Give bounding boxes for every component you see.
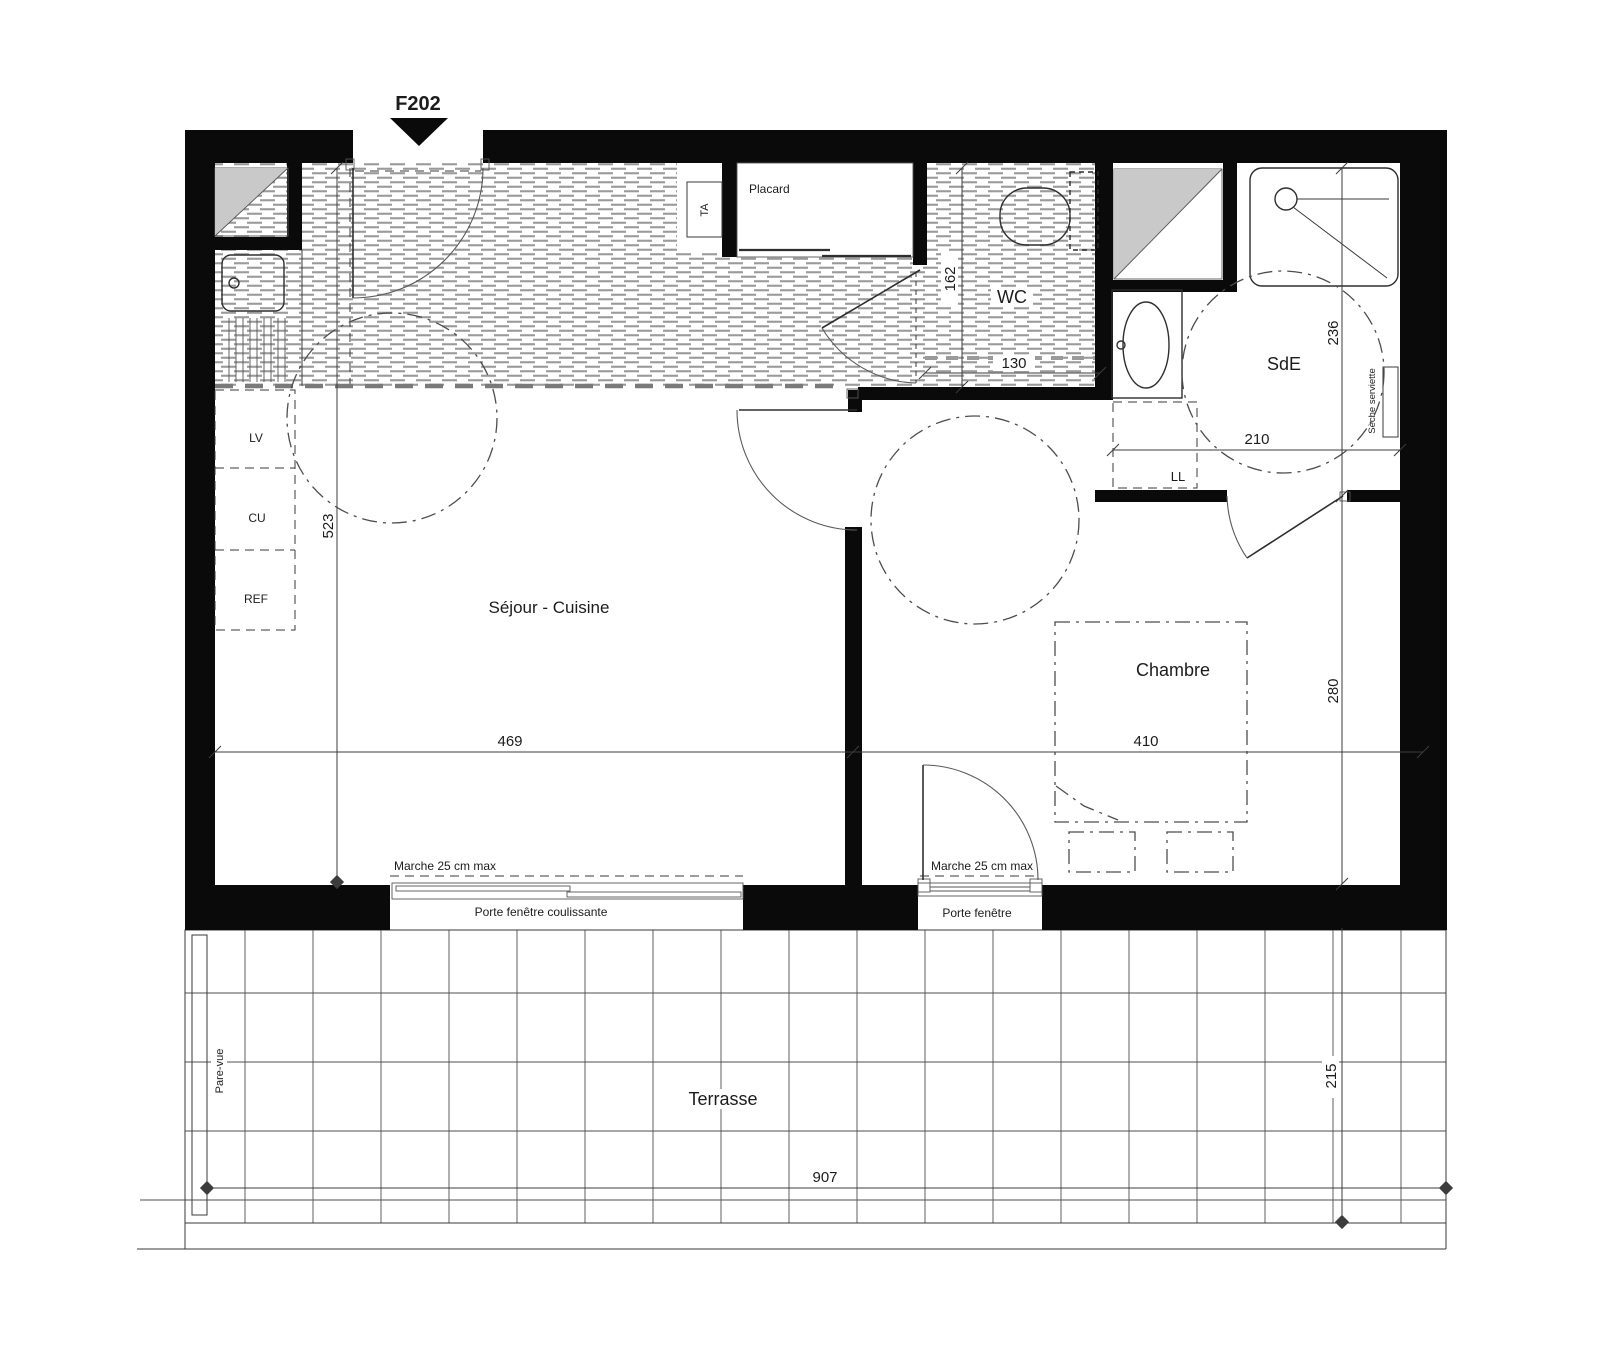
bed-pillow-right — [1167, 832, 1233, 872]
sliding-window: Marche 25 cm max Porte fenêtre coulissan… — [390, 859, 743, 919]
wall-kitchen-duct-side — [287, 163, 302, 250]
ta-label: TA — [699, 203, 711, 217]
sde-door-swing — [1227, 496, 1247, 558]
wall-sejour-chambre — [845, 527, 862, 885]
bed-outline — [1055, 622, 1247, 822]
dim-chambre-depth: 280 — [1325, 678, 1342, 703]
chambre-window: Marche 25 cm max Porte fenêtre — [918, 765, 1042, 920]
wall-left — [185, 130, 215, 885]
wall-bottom-right — [1042, 885, 1447, 930]
washbasin-icon — [1123, 302, 1169, 388]
kitchen-entry-floor-hatch — [215, 163, 1095, 387]
terrace: Pare-vue Terrasse — [137, 930, 1446, 1249]
wall-right — [1400, 163, 1447, 930]
towel-radiator-icon — [1383, 367, 1398, 437]
dim-wc-depth: 162 — [942, 266, 959, 291]
dishwasher-label: LV — [249, 431, 263, 445]
wall-kitchen-duct-bottom — [213, 237, 302, 250]
wall-placard-right — [913, 163, 927, 265]
wall-wc-bottom — [858, 387, 1100, 400]
dim-chambre-width: 410 — [1133, 733, 1158, 750]
dim-sde-width: 210 — [1244, 431, 1269, 448]
marche-chambre-label: Marche 25 cm max — [931, 859, 1033, 873]
dim-wc-width: 130 — [1001, 355, 1026, 372]
wall-bottom-left — [185, 885, 390, 930]
bed-fold-line — [1056, 786, 1118, 820]
washing-machine-label: LL — [1171, 469, 1185, 484]
shower-icon — [1250, 168, 1398, 286]
sde-label: SdE — [1267, 354, 1301, 374]
floor-plan-page: Pare-vue Terrasse F202 — [0, 0, 1600, 1356]
wall-bottom-middle — [743, 885, 918, 930]
dim-sejour-width: 469 — [497, 733, 522, 750]
floor-plan-drawing: Pare-vue Terrasse F202 — [0, 0, 1600, 1356]
fridge-label: REF — [244, 592, 268, 606]
towel-radiator-label: Sèche serviette — [1367, 368, 1378, 433]
chambre-label: Chambre — [1136, 660, 1210, 680]
wall-top-right — [483, 130, 1447, 163]
porte-fenetre-label: Porte fenêtre — [942, 906, 1012, 920]
sejour-label: Séjour - Cuisine — [489, 598, 610, 617]
entrance-arrow-icon — [390, 118, 448, 146]
pare-vue-label: Pare-vue — [214, 1049, 226, 1094]
dim-sde-depth: 236 — [1325, 320, 1342, 345]
terrasse-label: Terrasse — [688, 1089, 757, 1109]
sliding-panel-1 — [396, 886, 570, 891]
wall-sde-bottom-left — [1095, 490, 1227, 502]
dim-terrasse-depth: 215 — [1323, 1063, 1340, 1088]
sliding-panel-2 — [567, 892, 741, 897]
porte-fenetre-coulissante-label: Porte fenêtre coulissante — [475, 905, 608, 919]
pare-vue-screen — [192, 935, 207, 1215]
bed-pillow-left — [1069, 832, 1135, 872]
wc-label: WC — [997, 287, 1027, 307]
hall — [215, 386, 857, 530]
cooker-label: CU — [248, 511, 265, 525]
dim-sejour-depth: 523 — [320, 513, 337, 538]
unit-label: F202 — [395, 93, 441, 115]
wall-placard-left — [722, 163, 737, 257]
turning-circle-hall — [871, 416, 1079, 624]
wall-hall-jamb — [848, 390, 862, 412]
sejour-door-swing — [737, 410, 857, 530]
wall-sde-bottom-right — [1347, 490, 1400, 502]
placard-label: Placard — [749, 182, 790, 196]
wall-sde-duct-side — [1223, 163, 1237, 292]
sde-door-leaf — [1247, 496, 1343, 558]
dim-terrasse-width: 907 — [812, 1169, 837, 1186]
marche-sejour-label: Marche 25 cm max — [394, 859, 496, 873]
